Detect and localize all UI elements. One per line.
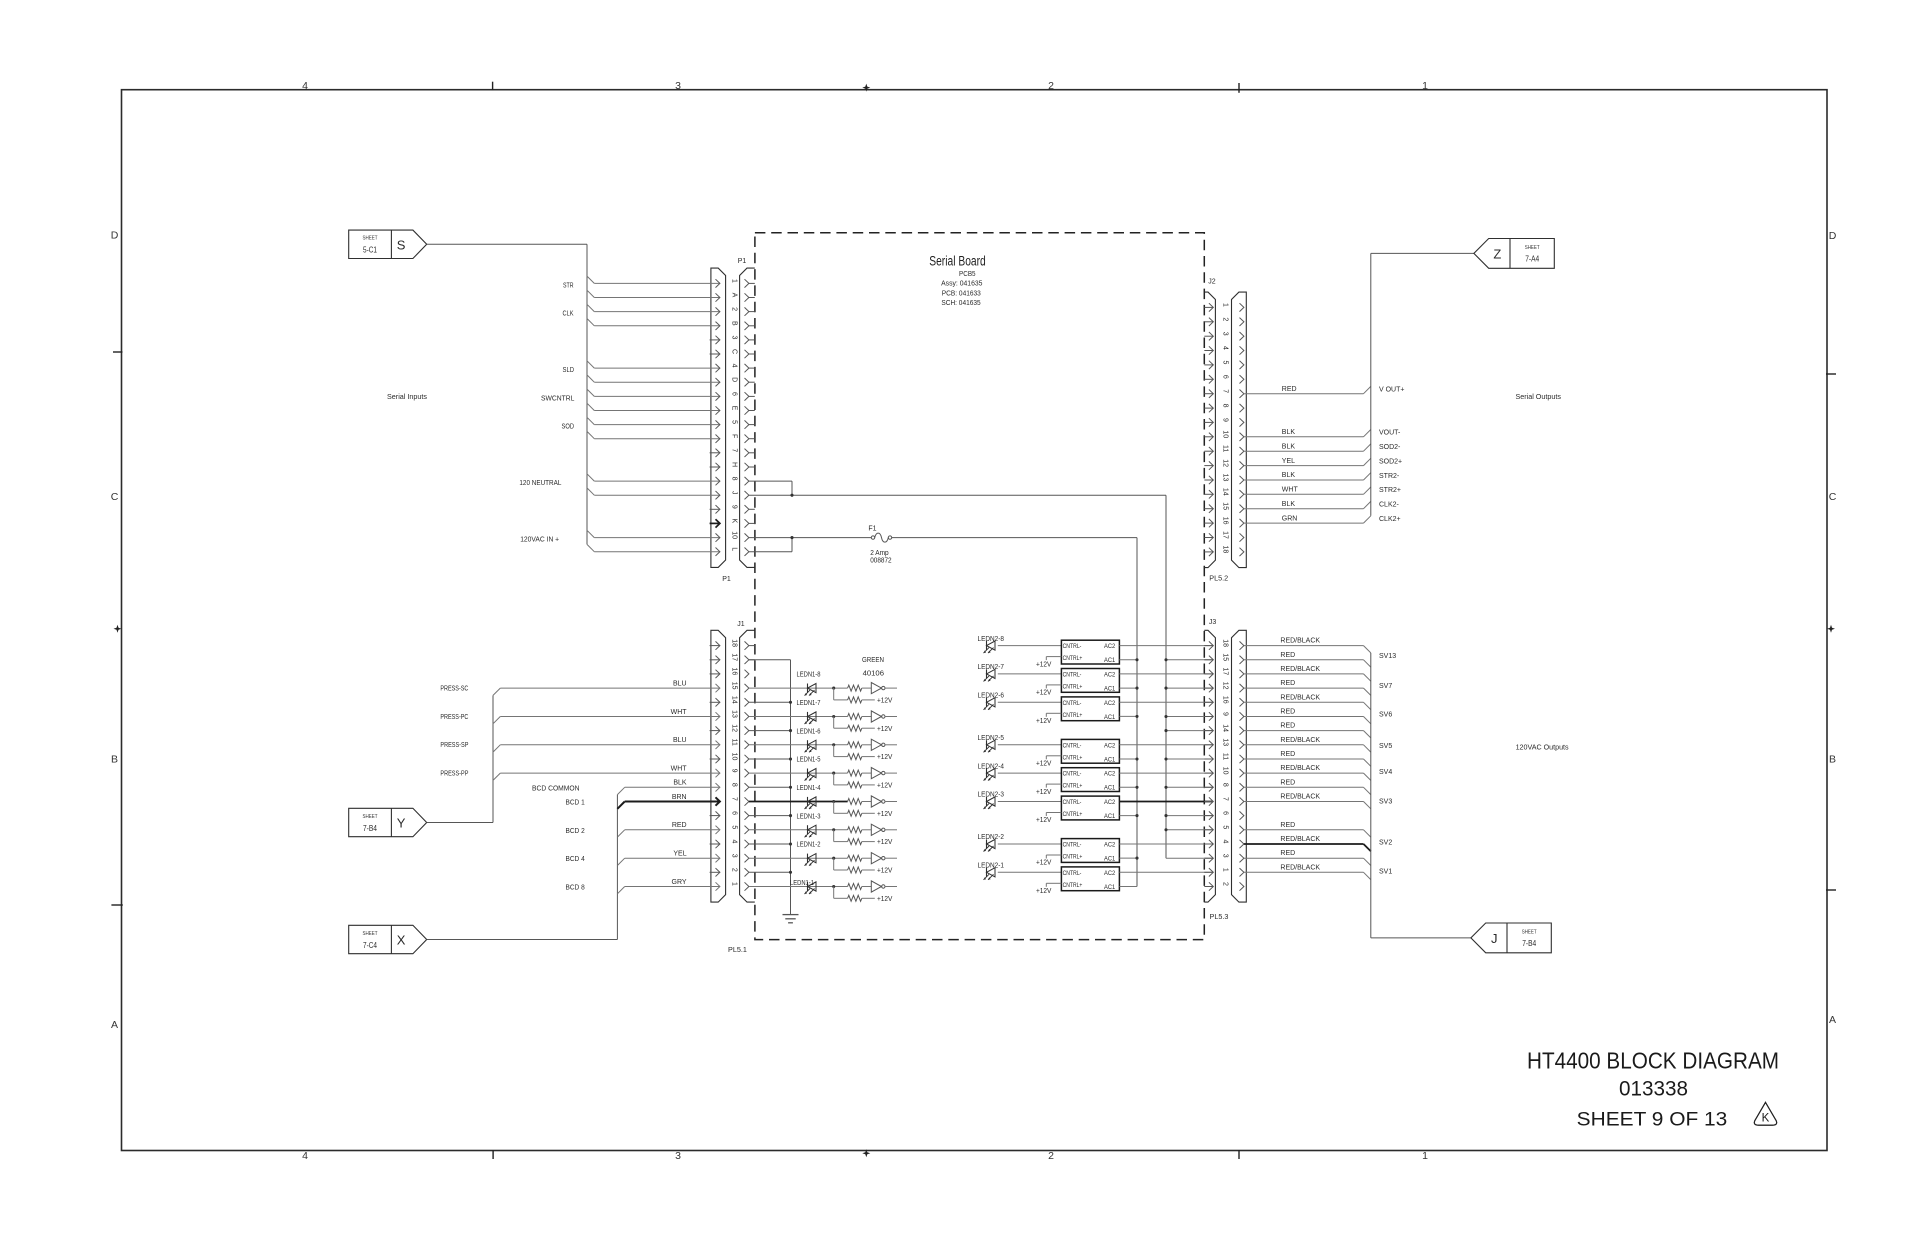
svg-text:STR: STR bbox=[563, 282, 574, 289]
svg-text:11: 11 bbox=[1221, 445, 1228, 452]
svg-text:A: A bbox=[1829, 1014, 1836, 1026]
svg-text:5: 5 bbox=[731, 420, 738, 424]
svg-text:LEDN1-5: LEDN1-5 bbox=[797, 757, 821, 764]
svg-text:LEDN2-7: LEDN2-7 bbox=[978, 664, 1005, 671]
svg-text:3: 3 bbox=[731, 335, 738, 339]
svg-text:SHEET: SHEET bbox=[363, 236, 379, 242]
svg-text:WHT: WHT bbox=[671, 766, 688, 773]
svg-text:AC2: AC2 bbox=[1104, 643, 1115, 650]
svg-text:SOD2+: SOD2+ bbox=[1379, 458, 1402, 465]
svg-text:CNTRL-: CNTRL- bbox=[1063, 700, 1082, 707]
svg-text:AC1: AC1 bbox=[1104, 813, 1115, 820]
svg-text:AC1: AC1 bbox=[1104, 714, 1115, 721]
svg-text:B: B bbox=[1829, 754, 1836, 766]
svg-text:CNTRL+: CNTRL+ bbox=[1063, 882, 1083, 889]
svg-text:VOUT-: VOUT- bbox=[1379, 430, 1401, 437]
svg-text:LEDN1-6: LEDN1-6 bbox=[797, 728, 821, 735]
svg-text:PCB5: PCB5 bbox=[959, 269, 976, 278]
svg-text:9: 9 bbox=[731, 505, 738, 509]
svg-text:17: 17 bbox=[731, 653, 738, 661]
svg-text:SLD: SLD bbox=[563, 367, 575, 374]
svg-text:LEDN1-7: LEDN1-7 bbox=[797, 700, 821, 707]
svg-text:BCD 8: BCD 8 bbox=[566, 885, 585, 892]
svg-text:STR2-: STR2- bbox=[1379, 473, 1400, 480]
svg-text:4: 4 bbox=[302, 1150, 308, 1162]
svg-text:3: 3 bbox=[1221, 854, 1228, 858]
svg-text:J2: J2 bbox=[1208, 279, 1216, 286]
svg-text:PL5.3: PL5.3 bbox=[1210, 914, 1229, 921]
svg-text:4: 4 bbox=[1221, 840, 1228, 844]
svg-text:SV6: SV6 bbox=[1379, 712, 1392, 719]
svg-text:1: 1 bbox=[731, 882, 738, 886]
svg-text:3: 3 bbox=[731, 854, 738, 858]
svg-text:BLK: BLK bbox=[1282, 429, 1296, 436]
svg-text:5-C1: 5-C1 bbox=[363, 246, 377, 255]
svg-text:V OUT+: V OUT+ bbox=[1379, 387, 1404, 394]
svg-text:1: 1 bbox=[1422, 80, 1428, 92]
svg-text:+12V: +12V bbox=[877, 726, 893, 733]
svg-text:4: 4 bbox=[302, 80, 308, 92]
svg-text:E: E bbox=[731, 406, 738, 411]
svg-text:8: 8 bbox=[731, 477, 738, 481]
svg-text:RED/BLACK: RED/BLACK bbox=[1280, 836, 1320, 843]
svg-text:13: 13 bbox=[1221, 474, 1228, 482]
svg-text:F: F bbox=[731, 434, 738, 438]
svg-text:D: D bbox=[1829, 230, 1837, 242]
svg-text:RED: RED bbox=[1280, 709, 1295, 716]
svg-text:SOD: SOD bbox=[562, 424, 575, 431]
svg-text:AC2: AC2 bbox=[1104, 870, 1115, 877]
svg-text:AC2: AC2 bbox=[1104, 672, 1115, 679]
svg-text:2: 2 bbox=[1048, 80, 1054, 92]
svg-text:18: 18 bbox=[1221, 546, 1228, 554]
svg-text:SV1: SV1 bbox=[1379, 869, 1392, 876]
svg-text:PRESS-SC: PRESS-SC bbox=[440, 685, 468, 692]
svg-text:4: 4 bbox=[1221, 346, 1228, 350]
svg-text:CNTRL-: CNTRL- bbox=[1063, 799, 1082, 806]
svg-text:J: J bbox=[1491, 931, 1498, 946]
svg-text:P1: P1 bbox=[738, 258, 747, 265]
svg-text:CNTRL+: CNTRL+ bbox=[1063, 811, 1083, 818]
svg-text:13: 13 bbox=[1221, 738, 1228, 746]
svg-text:CNTRL-: CNTRL- bbox=[1063, 842, 1082, 849]
svg-text:AC2: AC2 bbox=[1104, 799, 1115, 806]
svg-text:K: K bbox=[1762, 1113, 1770, 1125]
svg-text:AC1: AC1 bbox=[1104, 686, 1115, 693]
svg-text:AC2: AC2 bbox=[1104, 700, 1115, 707]
svg-text:+12V: +12V bbox=[877, 896, 893, 903]
svg-text:P1: P1 bbox=[722, 576, 731, 583]
svg-text:LEDN1-8: LEDN1-8 bbox=[797, 672, 821, 679]
svg-text:B: B bbox=[111, 754, 118, 766]
svg-text:10: 10 bbox=[731, 753, 738, 761]
svg-text:+12V: +12V bbox=[1036, 718, 1052, 725]
svg-text:C: C bbox=[1829, 491, 1837, 503]
svg-text:120VAC Outputs: 120VAC Outputs bbox=[1516, 743, 1569, 752]
svg-text:+12V: +12V bbox=[877, 754, 893, 761]
svg-text:3: 3 bbox=[1221, 332, 1228, 336]
svg-text:BCD 4: BCD 4 bbox=[566, 856, 585, 863]
svg-text:14: 14 bbox=[1221, 488, 1228, 496]
svg-text:10: 10 bbox=[1221, 767, 1228, 775]
svg-text:PL5.2: PL5.2 bbox=[1209, 576, 1228, 583]
svg-text:SHEET: SHEET bbox=[363, 931, 379, 937]
svg-text:AC1: AC1 bbox=[1104, 884, 1115, 891]
svg-text:RED/BLACK: RED/BLACK bbox=[1280, 638, 1320, 645]
svg-text:CNTRL+: CNTRL+ bbox=[1063, 854, 1083, 861]
svg-text:9: 9 bbox=[1221, 712, 1228, 716]
svg-text:+12V: +12V bbox=[877, 868, 893, 875]
svg-text:3: 3 bbox=[675, 80, 681, 92]
svg-text:LEDN2-2: LEDN2-2 bbox=[978, 834, 1005, 841]
svg-text:SHEET: SHEET bbox=[1522, 929, 1538, 935]
svg-text:7: 7 bbox=[1221, 389, 1228, 393]
svg-text:GRN: GRN bbox=[1282, 515, 1298, 522]
svg-text:RED/BLACK: RED/BLACK bbox=[1280, 694, 1320, 701]
svg-text:SCH: 041635: SCH: 041635 bbox=[941, 298, 980, 307]
svg-text:7: 7 bbox=[1221, 797, 1228, 801]
svg-text:S: S bbox=[397, 238, 406, 253]
svg-text:12: 12 bbox=[1221, 682, 1228, 690]
svg-text:6: 6 bbox=[731, 811, 738, 815]
svg-text:LEDN1-1: LEDN1-1 bbox=[790, 880, 814, 887]
svg-text:15: 15 bbox=[731, 682, 738, 690]
svg-text:LEDN2-5: LEDN2-5 bbox=[978, 735, 1005, 742]
svg-text:D: D bbox=[111, 230, 119, 242]
svg-text:C: C bbox=[111, 491, 119, 503]
svg-text:A: A bbox=[731, 293, 738, 298]
svg-text:STR2+: STR2+ bbox=[1379, 487, 1401, 494]
svg-text:RED: RED bbox=[1280, 779, 1295, 786]
svg-text:5: 5 bbox=[731, 825, 738, 829]
svg-text:1: 1 bbox=[1221, 868, 1228, 872]
svg-text:BRN: BRN bbox=[672, 794, 687, 801]
svg-text:18: 18 bbox=[731, 639, 738, 647]
svg-text:CNTRL-: CNTRL- bbox=[1063, 870, 1082, 877]
svg-text:LEDN1-3: LEDN1-3 bbox=[797, 813, 821, 820]
svg-text:8: 8 bbox=[1221, 404, 1228, 408]
svg-text:LEDN1-4: LEDN1-4 bbox=[797, 785, 821, 792]
svg-text:CNTRL-: CNTRL- bbox=[1063, 742, 1082, 749]
svg-text:16: 16 bbox=[731, 668, 738, 676]
svg-text:BLU: BLU bbox=[673, 681, 687, 688]
svg-text:6: 6 bbox=[1221, 375, 1228, 379]
svg-text:SV2: SV2 bbox=[1379, 840, 1392, 847]
svg-text:X: X bbox=[397, 933, 406, 948]
svg-text:2: 2 bbox=[1221, 882, 1228, 886]
svg-text:+12V: +12V bbox=[1036, 888, 1052, 895]
svg-text:SV3: SV3 bbox=[1379, 798, 1392, 805]
svg-text:40106: 40106 bbox=[863, 671, 885, 678]
svg-text:Serial Outputs: Serial Outputs bbox=[1515, 392, 1561, 401]
svg-text:+12V: +12V bbox=[877, 839, 893, 846]
svg-text:2: 2 bbox=[731, 307, 738, 311]
svg-text:J1: J1 bbox=[737, 621, 745, 628]
svg-text:17: 17 bbox=[1221, 668, 1228, 676]
svg-text:18: 18 bbox=[1221, 639, 1228, 647]
svg-text:CLK2+: CLK2+ bbox=[1379, 516, 1401, 523]
svg-text:+12V: +12V bbox=[877, 783, 893, 790]
svg-text:5: 5 bbox=[1221, 825, 1228, 829]
svg-text:BLK: BLK bbox=[1282, 472, 1296, 479]
svg-text:SV5: SV5 bbox=[1379, 743, 1392, 750]
svg-text:LEDN2-3: LEDN2-3 bbox=[978, 792, 1005, 799]
svg-text:2 Amp: 2 Amp bbox=[870, 550, 889, 557]
svg-text:+12V: +12V bbox=[1036, 761, 1052, 768]
svg-text:J3: J3 bbox=[1209, 619, 1217, 626]
svg-text:5: 5 bbox=[1221, 360, 1228, 364]
svg-text:SV13: SV13 bbox=[1379, 653, 1396, 660]
svg-text:H: H bbox=[731, 462, 738, 467]
svg-text:2: 2 bbox=[1048, 1150, 1054, 1162]
svg-text:LEDN2-8: LEDN2-8 bbox=[978, 636, 1005, 643]
svg-text:15: 15 bbox=[1221, 502, 1228, 510]
svg-text:BCD 1: BCD 1 bbox=[566, 800, 585, 807]
svg-text:16: 16 bbox=[1221, 517, 1228, 525]
svg-text:13: 13 bbox=[731, 710, 738, 718]
svg-text:AC2: AC2 bbox=[1104, 842, 1115, 849]
svg-text:8: 8 bbox=[731, 783, 738, 787]
svg-text:B: B bbox=[731, 321, 738, 326]
svg-text:AC1: AC1 bbox=[1104, 657, 1115, 664]
svg-text:+12V: +12V bbox=[1036, 860, 1052, 867]
svg-text:CNTRL+: CNTRL+ bbox=[1063, 754, 1083, 761]
svg-text:1: 1 bbox=[1422, 1150, 1428, 1162]
svg-text:12: 12 bbox=[731, 724, 738, 732]
svg-text:120VAC IN +: 120VAC IN + bbox=[520, 537, 559, 544]
svg-text:9: 9 bbox=[1221, 418, 1228, 422]
svg-text:12: 12 bbox=[1221, 459, 1228, 467]
svg-text:1: 1 bbox=[731, 279, 738, 283]
svg-text:J: J bbox=[731, 491, 738, 495]
svg-text:6: 6 bbox=[731, 392, 738, 396]
svg-text:013338: 013338 bbox=[1619, 1078, 1688, 1101]
svg-text:RED: RED bbox=[1282, 386, 1297, 393]
svg-text:16: 16 bbox=[1221, 696, 1228, 704]
svg-text:8: 8 bbox=[1221, 783, 1228, 787]
svg-text:+12V: +12V bbox=[1036, 789, 1052, 796]
svg-text:D: D bbox=[731, 377, 738, 382]
svg-text:+12V: +12V bbox=[877, 698, 893, 705]
svg-text:7-B4: 7-B4 bbox=[363, 824, 378, 833]
svg-text:PCB: 041633: PCB: 041633 bbox=[942, 288, 981, 297]
svg-text:LEDN2-4: LEDN2-4 bbox=[978, 763, 1005, 770]
svg-text:GREEN: GREEN bbox=[862, 657, 884, 664]
svg-text:RED/BLACK: RED/BLACK bbox=[1280, 737, 1320, 744]
svg-text:120 NEUTRAL: 120 NEUTRAL bbox=[519, 480, 561, 487]
svg-text:11: 11 bbox=[731, 739, 738, 746]
svg-text:RED/BLACK: RED/BLACK bbox=[1280, 794, 1320, 801]
svg-text:CLK2-: CLK2- bbox=[1379, 502, 1400, 509]
svg-text:11: 11 bbox=[1221, 753, 1228, 760]
svg-text:Assy: 041635: Assy: 041635 bbox=[941, 279, 982, 288]
svg-text:SV4: SV4 bbox=[1379, 769, 1392, 776]
svg-text:RED/BLACK: RED/BLACK bbox=[1280, 666, 1320, 673]
svg-text:9: 9 bbox=[731, 769, 738, 773]
svg-text:C: C bbox=[731, 349, 738, 354]
svg-text:CNTRL-: CNTRL- bbox=[1063, 771, 1082, 778]
svg-text:LEDN2-1: LEDN2-1 bbox=[978, 863, 1005, 870]
svg-text:Serial Board: Serial Board bbox=[929, 253, 986, 268]
svg-text:Z: Z bbox=[1493, 247, 1501, 262]
svg-text:YEL: YEL bbox=[1282, 458, 1295, 465]
svg-text:+12V: +12V bbox=[1036, 817, 1052, 824]
svg-text:7: 7 bbox=[731, 448, 738, 452]
svg-text:LEDN1-2: LEDN1-2 bbox=[797, 842, 821, 849]
svg-text:15: 15 bbox=[1221, 653, 1228, 661]
svg-text:AC1: AC1 bbox=[1104, 756, 1115, 763]
svg-text:CLK: CLK bbox=[563, 311, 574, 318]
svg-text:PRESS-PC: PRESS-PC bbox=[440, 714, 468, 721]
svg-text:PRESS-PP: PRESS-PP bbox=[440, 770, 468, 777]
svg-text:BLU: BLU bbox=[673, 737, 687, 744]
svg-text:SWCNTRL: SWCNTRL bbox=[541, 395, 574, 402]
svg-text:+12V: +12V bbox=[877, 811, 893, 818]
svg-text:SV7: SV7 bbox=[1379, 683, 1392, 690]
svg-text:+12V: +12V bbox=[1036, 661, 1052, 668]
svg-text:GRY: GRY bbox=[672, 879, 687, 886]
svg-text:AC2: AC2 bbox=[1104, 742, 1115, 749]
svg-text:BLK: BLK bbox=[673, 780, 687, 787]
svg-text:BCD COMMON: BCD COMMON bbox=[532, 785, 580, 792]
svg-text:Serial Inputs: Serial Inputs bbox=[387, 392, 427, 401]
svg-text:SHEET: SHEET bbox=[363, 814, 379, 820]
svg-text:RED/BLACK: RED/BLACK bbox=[1280, 864, 1320, 871]
svg-text:PRESS-SP: PRESS-SP bbox=[440, 742, 468, 749]
svg-text:RED: RED bbox=[1280, 751, 1295, 758]
svg-text:2: 2 bbox=[1221, 317, 1228, 321]
svg-text:7-B4: 7-B4 bbox=[1522, 939, 1537, 948]
svg-text:AC1: AC1 bbox=[1104, 785, 1115, 792]
svg-text:CNTRL+: CNTRL+ bbox=[1063, 783, 1083, 790]
svg-text:HT4400 BLOCK DIAGRAM: HT4400 BLOCK DIAGRAM bbox=[1527, 1048, 1779, 1074]
svg-text:CNTRL+: CNTRL+ bbox=[1063, 712, 1083, 719]
svg-text:F1: F1 bbox=[868, 526, 876, 533]
svg-text:SHEET: SHEET bbox=[1525, 245, 1541, 251]
svg-text:SHEET 9 OF 13: SHEET 9 OF 13 bbox=[1577, 1108, 1728, 1130]
svg-text:6: 6 bbox=[1221, 811, 1228, 815]
svg-text:17: 17 bbox=[1221, 531, 1228, 539]
svg-text:BLK: BLK bbox=[1282, 443, 1296, 450]
svg-text:PL5.1: PL5.1 bbox=[728, 947, 747, 954]
svg-text:WHT: WHT bbox=[671, 709, 688, 716]
svg-text:7-C4: 7-C4 bbox=[363, 941, 378, 950]
svg-text:+12V: +12V bbox=[1036, 690, 1052, 697]
svg-text:L: L bbox=[731, 547, 738, 551]
svg-text:Y: Y bbox=[397, 816, 406, 831]
svg-text:4: 4 bbox=[731, 840, 738, 844]
svg-text:7: 7 bbox=[731, 797, 738, 801]
svg-text:A: A bbox=[111, 1019, 118, 1031]
svg-text:10: 10 bbox=[731, 531, 738, 539]
svg-text:4: 4 bbox=[731, 364, 738, 368]
svg-text:RED: RED bbox=[1280, 723, 1295, 730]
svg-text:RED: RED bbox=[1280, 822, 1295, 829]
svg-text:008872: 008872 bbox=[870, 558, 891, 565]
svg-text:YEL: YEL bbox=[673, 851, 686, 858]
svg-text:SOD2-: SOD2- bbox=[1379, 444, 1401, 451]
svg-text:BCD 2: BCD 2 bbox=[566, 828, 585, 835]
svg-text:CNTRL-: CNTRL- bbox=[1063, 672, 1082, 679]
svg-text:10: 10 bbox=[1221, 430, 1228, 438]
svg-text:14: 14 bbox=[1221, 724, 1228, 732]
svg-text:CNTRL+: CNTRL+ bbox=[1063, 684, 1083, 691]
svg-text:RED: RED bbox=[1280, 652, 1295, 659]
svg-text:LEDN2-6: LEDN2-6 bbox=[978, 693, 1005, 700]
svg-text:2: 2 bbox=[731, 868, 738, 872]
svg-text:7-A4: 7-A4 bbox=[1525, 255, 1540, 264]
svg-text:3: 3 bbox=[675, 1150, 681, 1162]
svg-text:BLK: BLK bbox=[1282, 501, 1296, 508]
svg-text:CNTRL+: CNTRL+ bbox=[1063, 655, 1083, 662]
svg-text:RED/BLACK: RED/BLACK bbox=[1280, 765, 1320, 772]
svg-text:RED: RED bbox=[1280, 850, 1295, 857]
svg-text:AC1: AC1 bbox=[1104, 856, 1115, 863]
svg-text:CNTRL-: CNTRL- bbox=[1063, 643, 1082, 650]
svg-text:14: 14 bbox=[731, 696, 738, 704]
svg-text:1: 1 bbox=[1221, 303, 1228, 307]
svg-text:RED: RED bbox=[672, 822, 687, 829]
svg-text:RED: RED bbox=[1280, 680, 1295, 687]
svg-text:AC2: AC2 bbox=[1104, 771, 1115, 778]
svg-text:WHT: WHT bbox=[1282, 487, 1299, 494]
svg-text:K: K bbox=[731, 519, 738, 524]
